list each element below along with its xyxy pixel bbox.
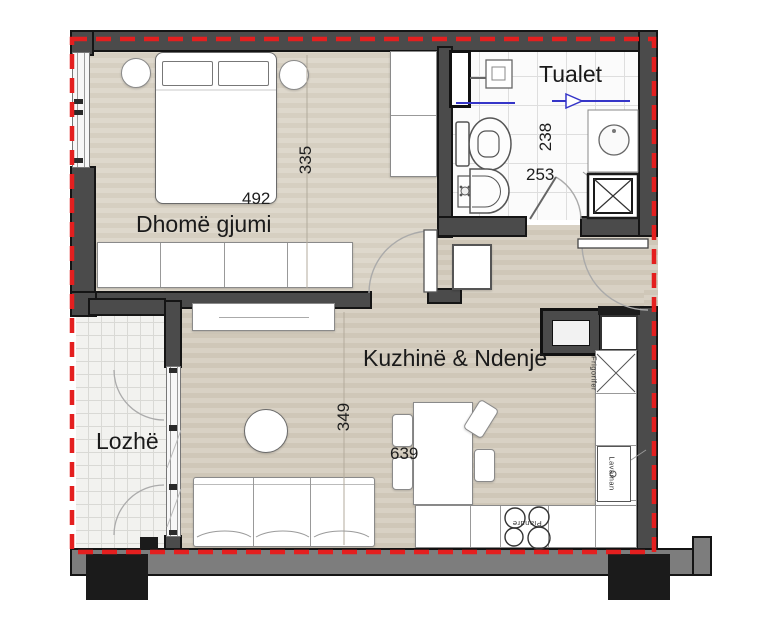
- fridge-label: Frigorifer: [590, 352, 599, 396]
- toilet-shower: [588, 174, 638, 218]
- toilet-bidet: [458, 169, 509, 213]
- cooktop-burners: [505, 507, 550, 549]
- fridge-symbol: [597, 354, 635, 392]
- bedroom-width-dim: 492: [242, 189, 270, 209]
- sofa-seat-curves: [197, 531, 369, 537]
- bedroom-height-dim: 335: [296, 140, 316, 180]
- toilet-width-dim: 253: [526, 165, 554, 185]
- toilet-wc: [456, 118, 511, 170]
- living-width-dim: 639: [390, 444, 418, 464]
- toilet-height-dim: 238: [536, 117, 556, 157]
- bedroom-door: [369, 230, 437, 293]
- loggia-label: Lozhë: [96, 428, 159, 455]
- kitchen-sink-label: Lavaman: [608, 452, 617, 496]
- entry-door: [578, 239, 648, 310]
- cooktop-label: Pianure: [505, 519, 549, 528]
- bedroom-label: Dhomë gjumi: [136, 211, 272, 238]
- plumbing-arrow-icon: [566, 94, 582, 108]
- toilet-wall-fixture: [470, 60, 512, 88]
- kitchen-living-label: Kuzhinë & Ndenje: [363, 345, 547, 372]
- plan-vector-overlay: [0, 0, 780, 638]
- toilet-label: Tualet: [539, 61, 602, 88]
- boundary-dashed-line: [72, 39, 654, 552]
- living-height-dim: 349: [334, 397, 354, 437]
- kitchen-sink-leader: [631, 450, 646, 460]
- toilet-sink: [583, 110, 638, 183]
- window-tick-marks: [74, 99, 177, 535]
- floor-plan: Dhomë gjumi Tualet Kuzhinë & Ndenje Lozh…: [0, 0, 780, 638]
